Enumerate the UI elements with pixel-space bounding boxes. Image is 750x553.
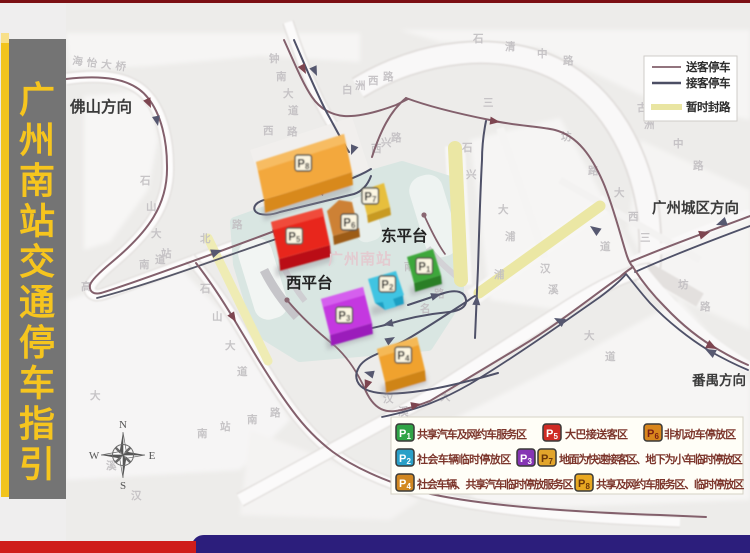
svg-text:P: P — [578, 478, 585, 490]
svg-text:大巴接送客区: 大巴接送客区 — [565, 427, 628, 441]
svg-text:佛山方向: 佛山方向 — [69, 97, 132, 116]
svg-text:P: P — [297, 159, 305, 171]
svg-text:停: 停 — [19, 322, 55, 363]
svg-text:社会车辆、共享汽车临时停放服务区: 社会车辆、共享汽车临时停放服务区 — [416, 477, 573, 491]
svg-text:车: 车 — [19, 363, 55, 404]
svg-text:溪: 溪 — [548, 283, 559, 296]
svg-text:石: 石 — [199, 283, 211, 295]
svg-text:大: 大 — [90, 389, 101, 402]
svg-text:中: 中 — [537, 47, 548, 60]
svg-text:兴: 兴 — [466, 168, 477, 181]
svg-text:接客停车: 接客停车 — [686, 76, 731, 90]
svg-text:南: 南 — [139, 258, 150, 271]
svg-text:W: W — [89, 450, 100, 462]
svg-text:洲: 洲 — [355, 80, 366, 92]
svg-text:路: 路 — [391, 131, 402, 144]
svg-text:暂时封路: 暂时封路 — [686, 100, 731, 114]
svg-text:西平台: 西平台 — [286, 273, 333, 292]
svg-text:P: P — [520, 453, 527, 465]
svg-text:路: 路 — [383, 70, 394, 83]
svg-text:路: 路 — [270, 406, 281, 419]
svg-text:1: 1 — [426, 265, 431, 274]
svg-text:汉: 汉 — [540, 262, 551, 275]
svg-text:名: 名 — [420, 302, 431, 315]
svg-text:1: 1 — [407, 432, 412, 441]
svg-text:7: 7 — [549, 457, 554, 466]
svg-text:石: 石 — [461, 142, 473, 154]
svg-text:站: 站 — [220, 420, 231, 433]
svg-text:溪: 溪 — [106, 459, 117, 472]
svg-text:2: 2 — [389, 283, 394, 292]
svg-text:南: 南 — [276, 70, 287, 83]
svg-text:8: 8 — [586, 482, 591, 491]
svg-text:2: 2 — [407, 457, 412, 466]
svg-text:大: 大 — [614, 186, 625, 199]
svg-text:E: E — [149, 450, 156, 462]
svg-text:大: 大 — [283, 87, 294, 100]
svg-text:清: 清 — [505, 40, 516, 53]
svg-text:广州城区方向: 广州城区方向 — [652, 199, 739, 217]
svg-text:南: 南 — [247, 413, 258, 426]
svg-text:路: 路 — [287, 125, 298, 138]
svg-text:坊: 坊 — [678, 278, 689, 291]
svg-text:路: 路 — [232, 218, 243, 231]
svg-text:P: P — [364, 192, 372, 204]
svg-text:三: 三 — [483, 97, 494, 109]
svg-text:石: 石 — [139, 175, 151, 187]
svg-text:山: 山 — [212, 310, 223, 323]
svg-text:N: N — [119, 419, 127, 431]
svg-text:东平台: 东平台 — [381, 226, 428, 245]
svg-text:西: 西 — [263, 125, 274, 137]
svg-text:4: 4 — [407, 482, 412, 491]
svg-text:P: P — [546, 428, 553, 440]
svg-text:北: 北 — [200, 232, 211, 245]
svg-text:3: 3 — [346, 314, 351, 323]
svg-text:P: P — [338, 311, 346, 323]
svg-text:浦: 浦 — [494, 268, 505, 281]
svg-text:P: P — [399, 478, 406, 490]
svg-text:共享及网约车服务区、临时停放区: 共享及网约车服务区、临时停放区 — [596, 477, 744, 491]
svg-text:通: 通 — [19, 282, 55, 323]
svg-text:西: 西 — [628, 211, 639, 223]
svg-text:广州南站: 广州南站 — [328, 250, 392, 268]
svg-text:送客停车: 送客停车 — [685, 60, 731, 74]
svg-text:大: 大 — [151, 227, 162, 240]
svg-text:7: 7 — [372, 195, 377, 204]
svg-text:州: 州 — [19, 120, 55, 161]
svg-text:S: S — [120, 480, 126, 492]
svg-text:路: 路 — [563, 54, 574, 67]
svg-text:P: P — [647, 428, 654, 440]
svg-text:道: 道 — [605, 350, 616, 363]
svg-text:5: 5 — [554, 432, 559, 441]
svg-text:大: 大 — [225, 339, 236, 352]
svg-text:6: 6 — [655, 432, 660, 441]
svg-text:路: 路 — [700, 300, 711, 313]
svg-text:社会车辆临时停放区: 社会车辆临时停放区 — [416, 452, 511, 466]
svg-text:山: 山 — [146, 200, 157, 213]
svg-text:P: P — [288, 232, 296, 244]
svg-text:P: P — [397, 351, 405, 363]
svg-text:P: P — [541, 453, 548, 465]
svg-text:钟: 钟 — [269, 52, 280, 65]
svg-text:指: 指 — [19, 403, 55, 444]
svg-text:白: 白 — [342, 83, 353, 96]
svg-text:站: 站 — [161, 247, 172, 260]
svg-text:非机动车停放区: 非机动车停放区 — [664, 427, 736, 441]
svg-text:石: 石 — [472, 33, 484, 45]
svg-text:4: 4 — [405, 354, 410, 363]
svg-text:P: P — [343, 218, 351, 230]
svg-text:交: 交 — [19, 241, 55, 282]
svg-text:站: 站 — [19, 201, 55, 242]
svg-text:P: P — [399, 453, 406, 465]
svg-text:浦: 浦 — [505, 230, 516, 243]
svg-text:大: 大 — [498, 203, 509, 216]
svg-text:5: 5 — [296, 235, 301, 244]
svg-text:番禺方向: 番禺方向 — [691, 372, 746, 388]
svg-text:道: 道 — [237, 365, 248, 378]
svg-text:中: 中 — [673, 137, 684, 150]
svg-text:共享汽车及网约车服务区: 共享汽车及网约车服务区 — [417, 427, 527, 441]
svg-text:P: P — [399, 428, 406, 440]
svg-text:南: 南 — [19, 160, 55, 201]
svg-text:西: 西 — [368, 75, 379, 87]
svg-text:道: 道 — [600, 240, 611, 253]
svg-text:P: P — [381, 280, 389, 292]
svg-text:地面为快速接客区、地下为小车临时停放区: 地面为快速接客区、地下为小车临时停放区 — [559, 452, 743, 466]
svg-text:三: 三 — [640, 232, 651, 244]
svg-text:汉: 汉 — [131, 489, 142, 502]
svg-text:6: 6 — [351, 221, 356, 230]
svg-text:南: 南 — [197, 427, 208, 440]
svg-text:引: 引 — [19, 444, 55, 485]
svg-text:大: 大 — [584, 329, 595, 342]
svg-text:路: 路 — [693, 159, 704, 172]
svg-text:8: 8 — [305, 162, 310, 171]
svg-text:道: 道 — [288, 104, 299, 117]
svg-text:P: P — [418, 262, 426, 274]
svg-text:广: 广 — [19, 79, 55, 120]
svg-text:3: 3 — [528, 457, 533, 466]
